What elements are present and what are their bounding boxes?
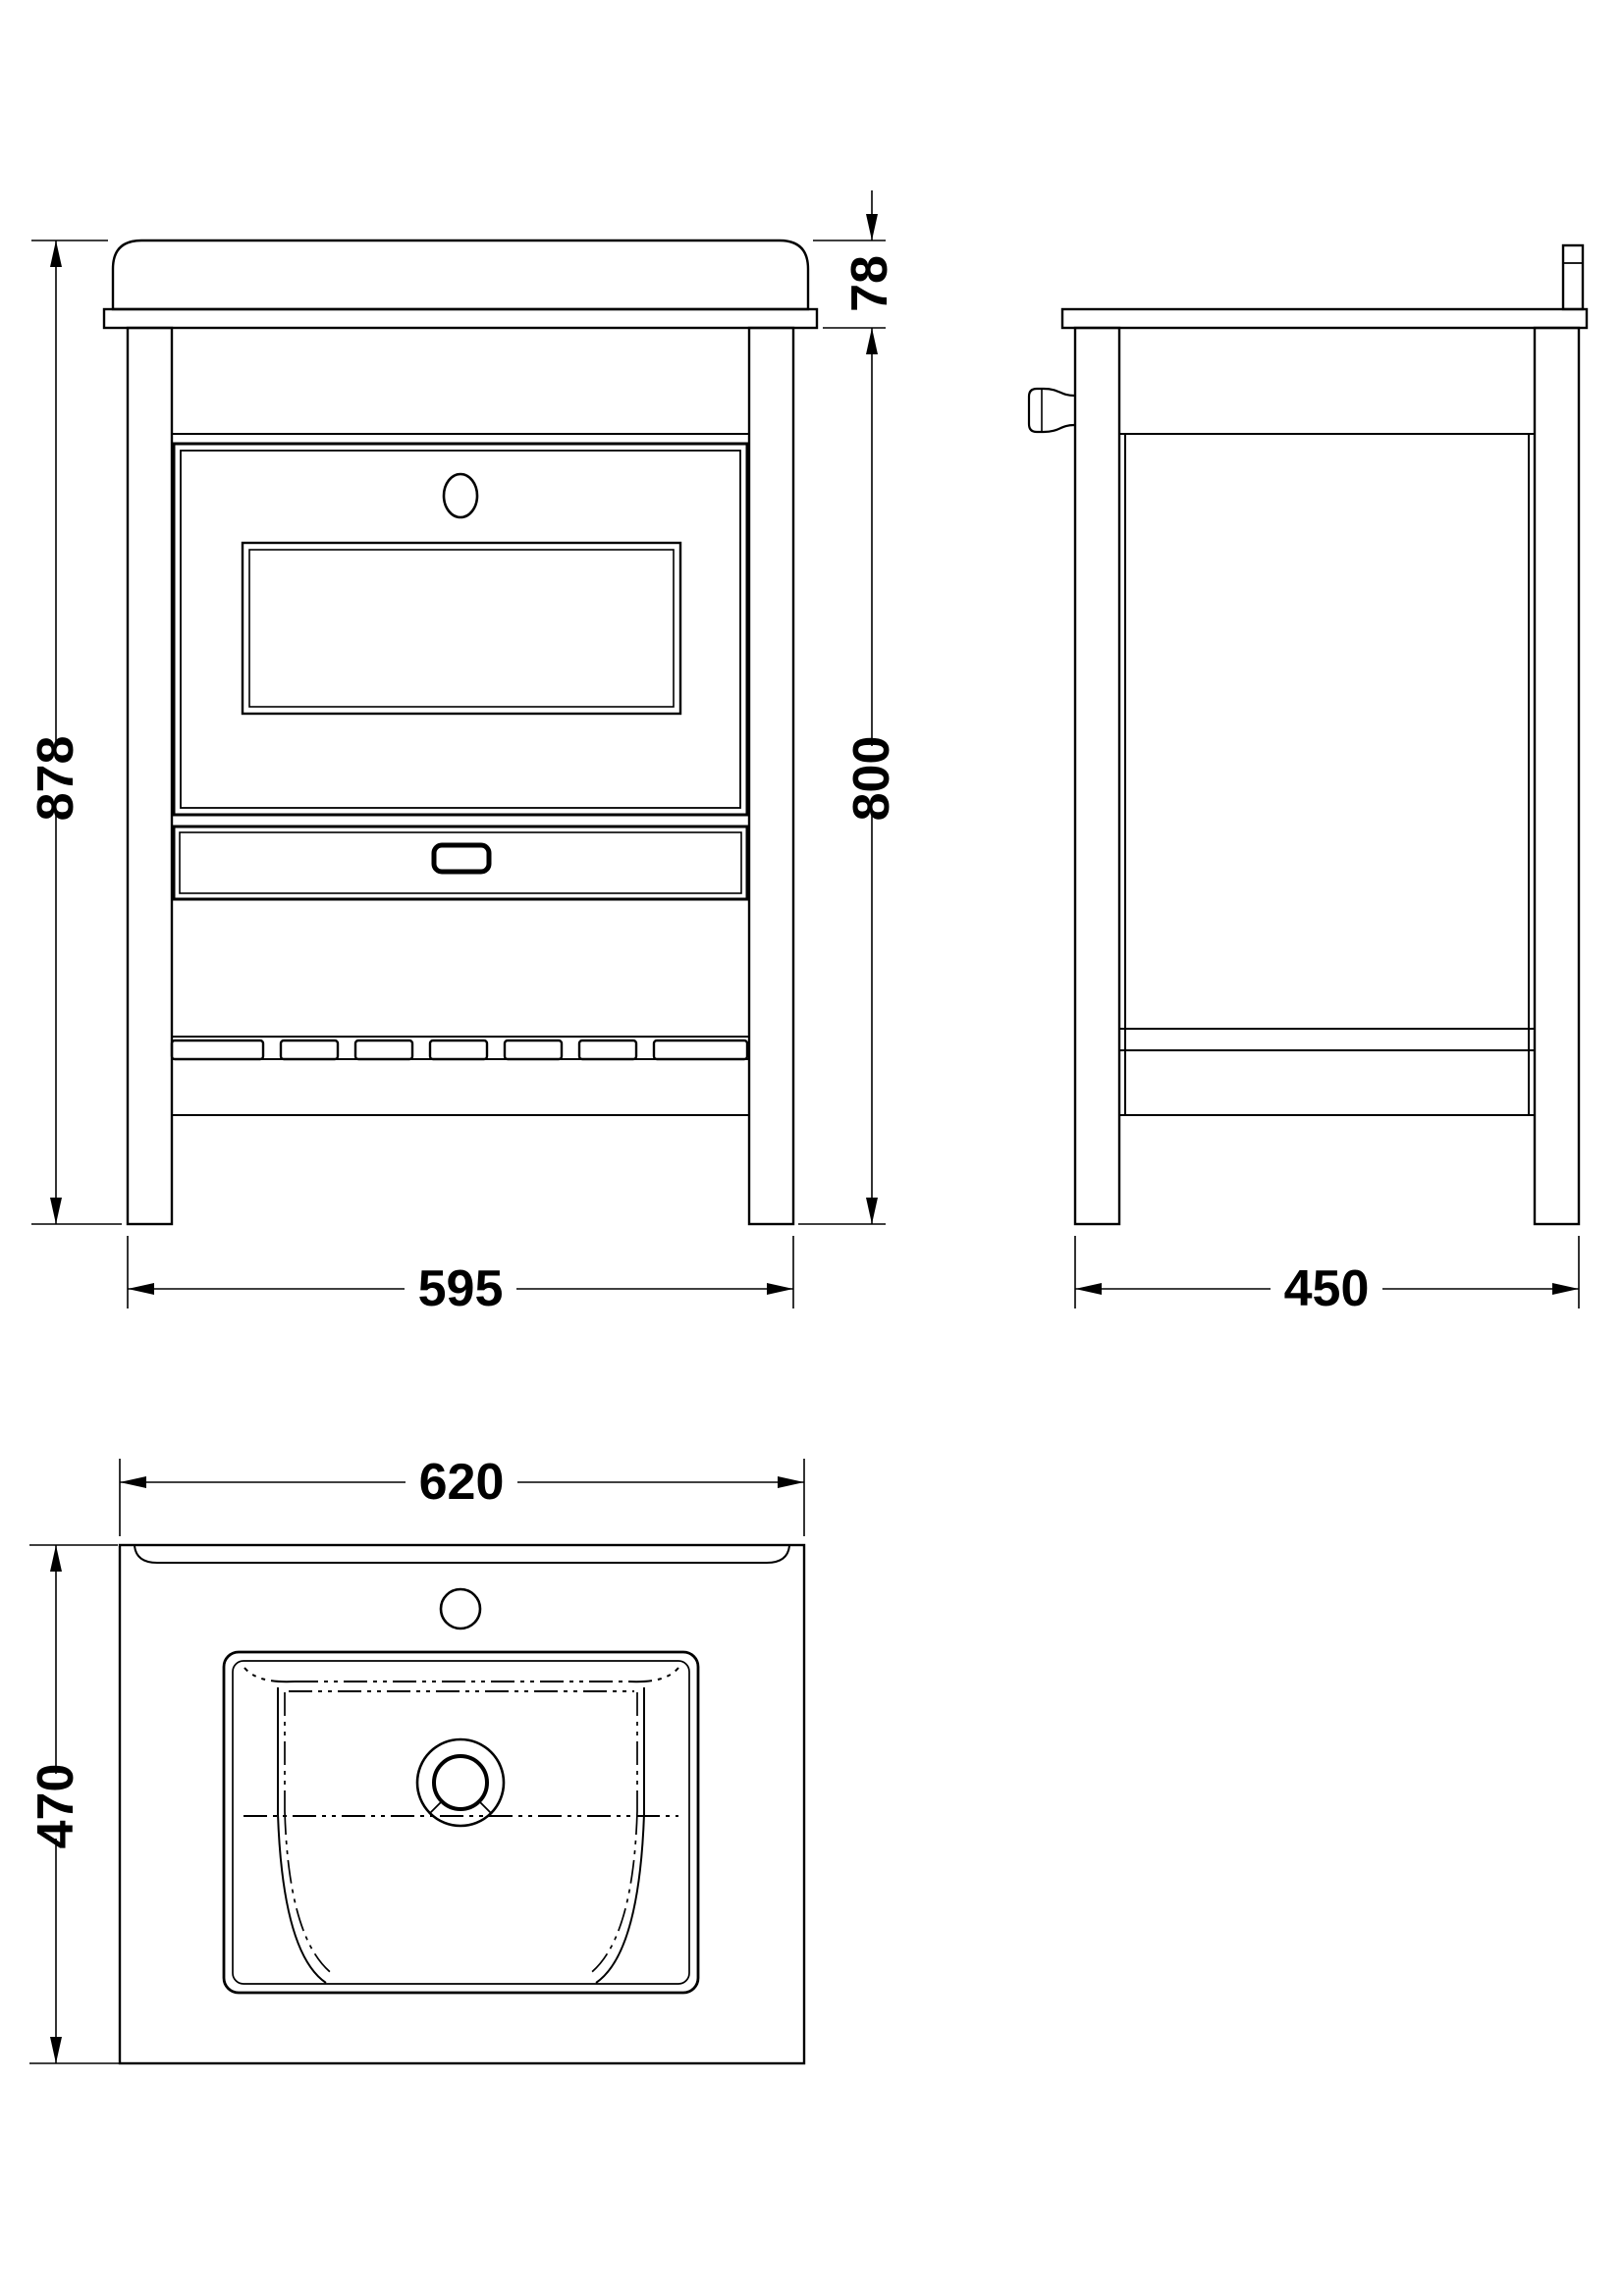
bowl-wall-right-curve	[596, 1814, 644, 1983]
basin-top	[113, 240, 808, 309]
vanity-dimension-drawing: 878 78 800 595	[0, 0, 1623, 2296]
side-countertop	[1062, 309, 1587, 328]
drawer-recessed-panel	[243, 543, 680, 714]
slat	[654, 1041, 747, 1059]
dim-basin-width-label: 620	[419, 1454, 505, 1511]
slat	[281, 1041, 338, 1059]
drawer-front	[174, 444, 747, 815]
bowl-wall-left-curve-hidden	[285, 1811, 334, 1975]
bowl-wall-right-curve-hidden	[588, 1811, 637, 1975]
front-view	[104, 240, 817, 1224]
counter-lip	[104, 309, 817, 328]
dim-front-height-label: 878	[27, 736, 84, 822]
basin-rim-outer	[224, 1652, 698, 1993]
front-right-leg	[749, 328, 793, 1224]
dim-cabinet-height: 800	[798, 328, 900, 1224]
dim-front-width: 595	[128, 1236, 793, 1317]
dim-front-width-label: 595	[418, 1260, 504, 1317]
drain-tick-left	[429, 1801, 442, 1814]
slat	[172, 1041, 263, 1059]
side-back-leg	[1535, 328, 1579, 1224]
technical-drawing-sheet: 878 78 800 595	[0, 0, 1623, 2296]
slat	[579, 1041, 636, 1059]
drawer-recessed-panel-inner	[249, 550, 674, 707]
dim-basin-height: 78	[813, 190, 898, 354]
bowl-wall-left-curve	[278, 1814, 326, 1983]
slat	[355, 1041, 412, 1059]
drain	[417, 1739, 504, 1826]
plan-front-lip	[135, 1546, 789, 1563]
dim-basin-depth-label: 470	[27, 1764, 84, 1849]
bowl-hidden-corner-tr	[628, 1668, 678, 1682]
door-knob	[1029, 389, 1074, 432]
slat	[430, 1041, 487, 1059]
slat	[505, 1041, 562, 1059]
dim-front-height: 878	[27, 240, 122, 1224]
dim-side-depth: 450	[1075, 1236, 1579, 1317]
plan-view	[120, 1545, 804, 2063]
side-view	[1029, 245, 1587, 1224]
handle-cutout	[434, 845, 489, 872]
lower-drawer-rail	[174, 827, 747, 899]
basin-rim-inner	[233, 1661, 689, 1984]
dim-side-depth-label: 450	[1284, 1260, 1370, 1317]
dim-basin-depth: 470	[27, 1545, 155, 2063]
tap-hole-plan	[441, 1589, 480, 1629]
drawer-front-inner-line	[181, 451, 740, 808]
side-front-leg	[1075, 328, 1119, 1224]
splashback-upstand	[1563, 245, 1583, 309]
lower-drawer-rail-inner	[180, 832, 741, 893]
plan-outline	[120, 1545, 804, 2063]
dim-basin-width: 620	[120, 1454, 804, 1536]
front-left-leg	[128, 328, 172, 1224]
drain-inner-circle	[434, 1756, 487, 1809]
slatted-shelf	[172, 1037, 749, 1115]
dim-cabinet-height-label: 800	[843, 736, 900, 822]
drain-tick-right	[479, 1801, 492, 1814]
tap-hole-front	[444, 474, 477, 517]
bowl-hidden-corner-tl	[244, 1668, 295, 1682]
dim-basin-height-label: 78	[841, 255, 898, 312]
